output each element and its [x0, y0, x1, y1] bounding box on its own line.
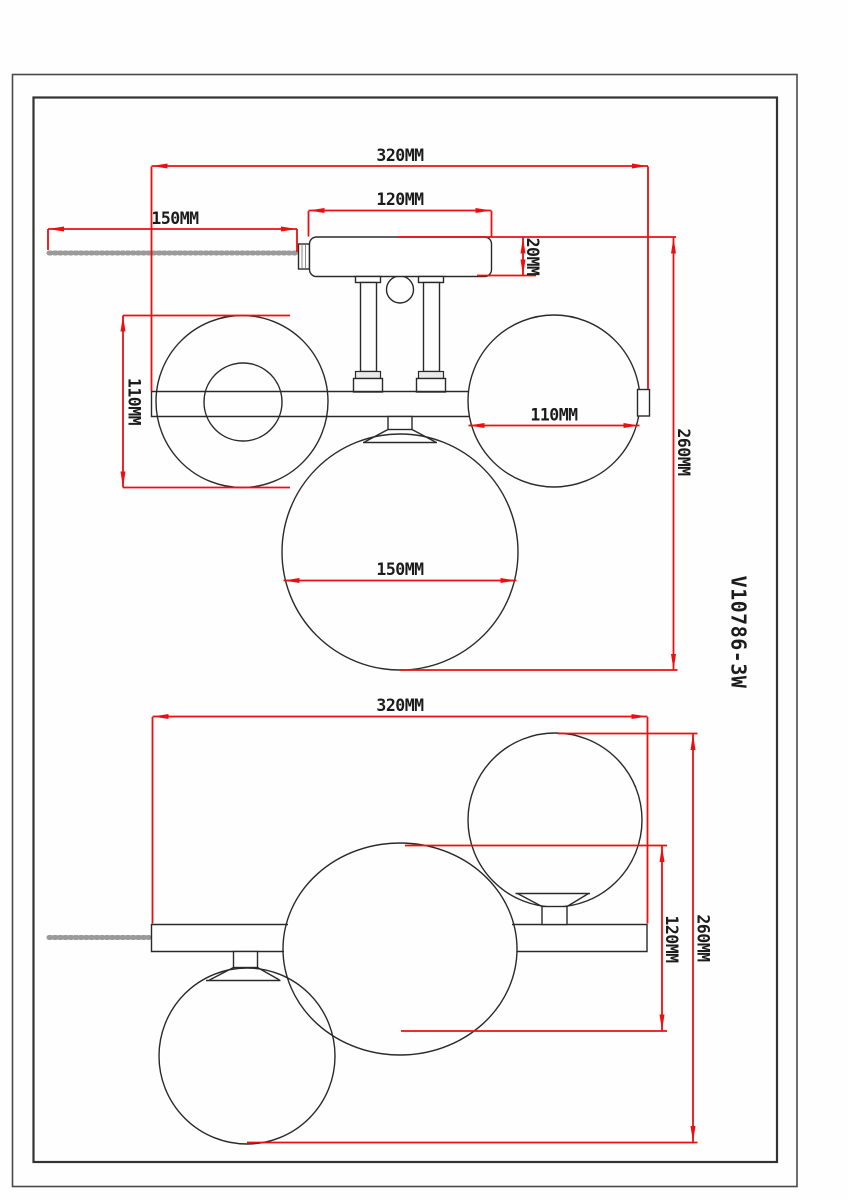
dim-label: 260MM — [674, 428, 693, 476]
dim-label: 260MM — [694, 914, 713, 962]
dim-label: 110MM — [125, 378, 144, 426]
dim-label: 110MM — [530, 406, 578, 425]
dim-label: 320MM — [376, 696, 424, 715]
left-globe-inner-ring — [204, 363, 282, 441]
dim-front-canopy-width: 120MM — [309, 190, 492, 237]
mounting-bar-right — [512, 925, 647, 952]
dim-label: 20MM — [523, 238, 542, 276]
dim-label: 320MM — [376, 146, 424, 165]
dim-label: 150MM — [151, 209, 199, 228]
technical-drawing: 320MM 120MM 150MM 20MM 110MM — [0, 0, 848, 1200]
dim-front-left-globe: 110MM — [123, 316, 290, 488]
dim-top-globe-offset: 120MM — [401, 846, 681, 1032]
dim-front-right-globe: 110MM — [469, 406, 640, 426]
dim-front-overall-height: 260MM — [400, 238, 693, 671]
left-rod — [354, 277, 383, 393]
canopy — [310, 237, 492, 277]
center-ball-finial — [387, 276, 414, 303]
dim-label: 120MM — [376, 190, 424, 209]
dim-top-overall-depth: 260MM — [247, 734, 713, 1143]
center-globe — [282, 434, 518, 670]
dim-label: 150MM — [376, 560, 424, 579]
chain-knob — [299, 244, 310, 269]
lower-left-socket — [206, 952, 281, 981]
left-globe — [156, 316, 328, 488]
center-globe — [283, 843, 517, 1055]
dim-top-overall-width: 320MM — [153, 696, 648, 924]
bar-end-stub — [638, 390, 650, 417]
dim-label: 120MM — [662, 915, 681, 963]
dim-front-center-globe: 150MM — [284, 560, 517, 581]
upper-right-socket — [516, 894, 591, 925]
center-globe-socket — [363, 417, 437, 443]
top-view: 320MM 260MM 120MM — [49, 696, 713, 1144]
right-rod — [417, 277, 446, 393]
part-number: V10786-3W — [727, 576, 751, 689]
right-globe — [468, 315, 640, 487]
mounting-bar-left — [152, 925, 289, 952]
dim-front-chain-length: 150MM — [48, 209, 297, 252]
drawing-page: 320MM 120MM 150MM 20MM 110MM — [0, 0, 848, 1200]
mounting-bar — [152, 392, 470, 417]
upper-right-globe — [468, 733, 642, 907]
lower-left-globe — [159, 968, 335, 1144]
front-view: 320MM 120MM 150MM 20MM 110MM — [48, 146, 693, 670]
